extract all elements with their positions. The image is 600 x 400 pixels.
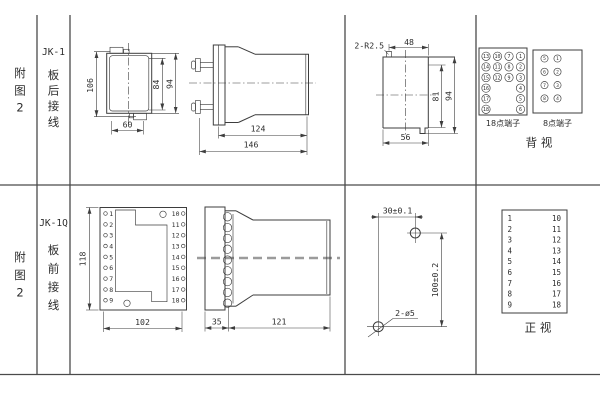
table-cell: 10 [552,214,562,223]
terminal-point-number: 8 [543,96,546,102]
terminal-hole [104,223,108,227]
model-label: JK-1Q [39,218,68,229]
dim-106: 106 [85,78,95,93]
hole-leader-diagonal [368,319,393,338]
figure-label-char: 附 [14,250,26,264]
terminal-point-number: 7 [507,54,510,60]
terminal-label: 17 [172,286,180,294]
model-label: JK-1 [42,47,65,58]
table-cell: 11 [552,225,561,234]
top-panel-cutout-view: 2-R2.5 48 81 94 56 [354,37,458,146]
terminal-hole [181,244,185,248]
mounting-plate [213,45,225,125]
terminal-hole [104,288,108,292]
terminal-hole [104,255,108,259]
mounting-bolt-top [192,59,214,72]
terminal-label: 4 [109,242,113,250]
table-right-column: 101112131415161718 [552,214,562,309]
terminal-label: 6 [109,264,113,272]
terminal-label: 2 [109,221,113,229]
figure-label-char: 图 [14,268,26,282]
bottom-panel-side-view: 35 121 [197,207,340,332]
terminal-hole [181,277,185,281]
terminal-point-number: 8 [507,65,510,71]
terminal-8pt-diagram: 56781234 8点端子 [533,50,582,128]
terminal-point-number: 10 [494,54,500,60]
table-cell: 3 [508,236,513,245]
terminal-label: 12 [172,232,180,240]
terminal-point-number: 6 [519,107,522,113]
terminal-hole [181,212,185,216]
wiring-label-char: 线 [48,115,60,129]
dim-94: 94 [164,79,174,89]
case-inner-outline [110,56,149,111]
dim-118: 118 [78,252,88,267]
wiring-label-char: 后 [48,84,60,98]
terminals-right: 101112131415161718 [172,210,185,305]
table-cell: 4 [508,246,513,255]
terminal-label: 16 [172,275,180,283]
dim-146: 146 [244,140,259,150]
mounting-bolt-bottom [192,101,214,114]
figure-label-char: 图 [14,84,26,98]
terminal-label: 9 [109,297,113,305]
dim-100: 100±0.2 [430,263,440,298]
terminal-point-number: 2 [556,69,559,75]
dim-94: 94 [443,91,453,101]
wiring-label-char: 线 [48,298,60,312]
terminal-point-number: 2 [519,65,522,71]
mounting-hole-top [160,211,166,217]
wiring-label-char: 接 [48,99,60,113]
table-cell: 1 [508,214,513,223]
table-cell: 9 [508,300,513,309]
terminal-label: 1 [109,210,113,218]
table-cell: 15 [552,268,561,277]
sidebar-bottom: 附 图 2 JK-1Q 板 前 接 线 [14,218,68,312]
table-cell: 8 [508,290,513,299]
table-cell: 13 [552,246,561,255]
terminal-label: 15 [172,264,180,272]
terminal-point-number: 3 [556,83,559,89]
screw-notch-top [387,52,392,58]
top-case-front-view: 106 84 94 60 [85,43,179,135]
case-outline [107,53,152,113]
terminal-point-number: 1 [556,56,559,62]
terminal-label: 5 [109,253,113,261]
terminal-point-number: 7 [543,83,546,89]
drill-template-view: 30±0.1 100±0.2 2-ø5 [367,206,447,338]
terminal-point-number: 15 [483,75,489,81]
dim-56: 56 [401,132,411,142]
bottom-terminal-tab-step [129,113,133,118]
case-body [255,54,309,115]
wiring-label-char: 板 [48,243,60,257]
terminal-label: 10 [172,210,180,218]
terminal-hole [181,255,185,259]
terminal-point-number: 4 [519,86,522,92]
terminal-hole [104,299,108,303]
terminal-hole [104,266,108,270]
mounting-hole-bottom [124,300,130,306]
terminal-point-number: 9 [507,75,510,81]
rear-view-label: 背 视 [526,136,553,150]
terminal-8pt-label: 8点端子 [543,118,572,128]
table-cell: 12 [552,236,561,245]
terminal-point-number: 11 [494,65,500,71]
sidebar-top: 附 图 2 JK-1 板 后 接 线 [14,47,65,129]
terminal-point-number: 1 [519,54,522,60]
dim-60: 60 [123,120,133,130]
table-cell: 17 [552,290,561,299]
terminal-point-number: 5 [543,56,546,62]
terminal-point-number: 16 [483,86,489,92]
terminal-point-number: 6 [543,69,546,75]
figure-label-char: 2 [16,286,23,300]
bottom-panel-front-view: 123456789 101112131415161718 118 102 [78,208,187,333]
terminal-hole [104,212,108,216]
terminal-hole [181,233,185,237]
technical-drawing-page: 附 图 2 JK-1 板 后 接 线 附 图 2 JK-1Q 板 前 接 线 1… [0,0,600,400]
terminal-hole [104,233,108,237]
terminal-label: 18 [172,297,180,305]
dim-81: 81 [430,92,440,102]
terminal-hole [181,266,185,270]
terminals-left: 123456789 [104,210,114,305]
dim-48: 48 [404,37,414,47]
relay-body [253,220,330,295]
terminal-hole [181,223,185,227]
table-cell: 18 [552,300,562,309]
wiring-label-char: 接 [48,280,60,294]
terminal-table: 123456789 101112131415161718 [502,210,567,313]
terminal-label: 13 [172,242,180,250]
wiring-label-char: 板 [48,68,60,82]
terminal-hole [181,299,185,303]
terminal-hole [104,277,108,281]
dim-121: 121 [272,316,287,326]
relay-outline-drawing: 附 图 2 JK-1 板 后 接 线 附 图 2 JK-1Q 板 前 接 线 1… [0,0,600,400]
dim-30: 30±0.1 [383,206,413,216]
table-cell: 6 [508,268,513,277]
terminal-18pt-diagram: 131415161718101112789123456 18点端子 [479,48,527,128]
terminal-point-number: 3 [519,75,522,81]
table-cell: 5 [508,257,513,266]
terminal-label: 3 [109,232,113,240]
terminal-point-number: 17 [483,97,489,103]
top-terminal-tab [110,47,123,53]
holes-callout: 2-ø5 [395,308,415,318]
wiring-label-char: 前 [48,262,60,276]
relay-body-outline [116,210,168,302]
terminal-label: 7 [109,275,113,283]
terminal-points: 131415161718101112789123456 [482,52,525,113]
terminal-point-number: 4 [556,96,559,102]
dim-124: 124 [251,124,266,134]
dim-35: 35 [212,316,222,326]
terminal-hole [104,244,108,248]
table-cell: 2 [508,225,513,234]
terminal-point-number: 14 [483,65,489,71]
terminal-point-number: 5 [519,97,522,103]
table-cell: 14 [552,257,562,266]
dim-84: 84 [151,80,161,90]
terminal-18pt-label: 18点端子 [486,118,520,128]
terminal-points: 56781234 [541,55,561,102]
table-cell: 16 [552,279,562,288]
terminal-label: 11 [172,221,180,229]
dim-102: 102 [135,317,150,327]
terminal-hole [181,288,185,292]
table-left-column: 123456789 [508,214,513,309]
terminal-point-number: 12 [494,75,500,81]
figure-label-char: 附 [14,66,26,80]
front-view-label: 正 视 [525,321,552,335]
figure-label-char: 2 [16,101,23,115]
top-case-side-view: 124 146 [189,45,316,155]
terminal-label: 14 [172,253,180,261]
radius-callout: 2-R2.5 [354,41,384,51]
terminal-point-number: 18 [483,107,489,113]
terminal-point-number: 13 [483,54,489,60]
table-cell: 7 [508,279,513,288]
terminal-label: 8 [109,286,113,294]
